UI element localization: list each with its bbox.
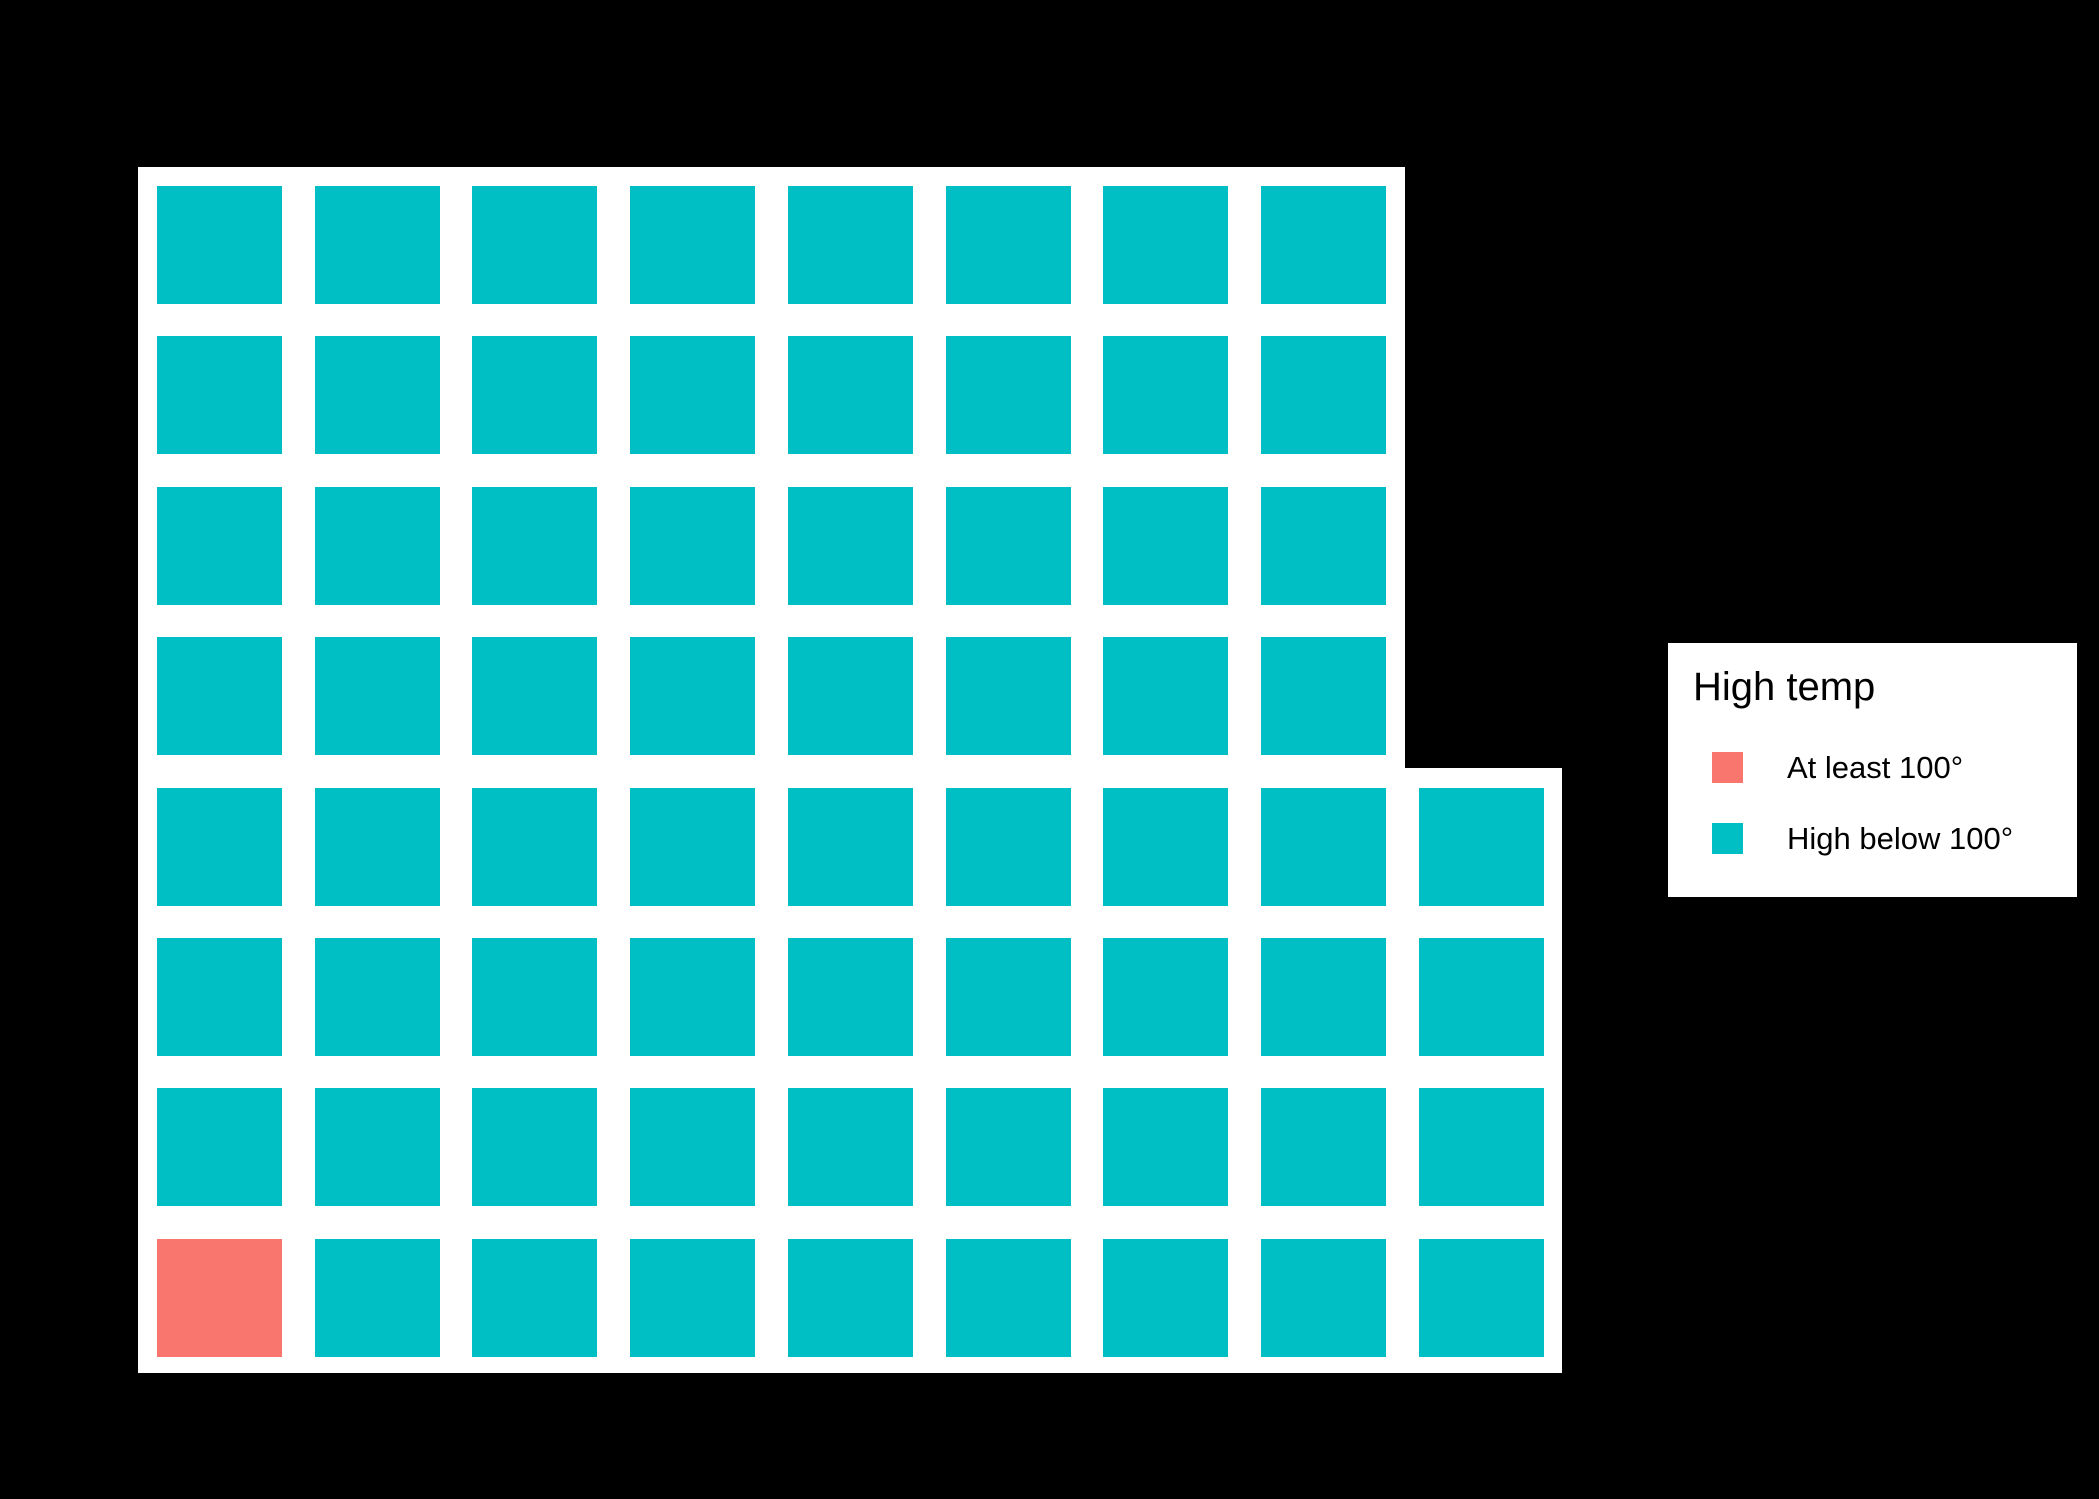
waffle-cell-r7c3 [472,1088,597,1206]
waffle-cell-r8c5 [788,1239,913,1357]
waffle-cell-r4c2 [315,637,440,755]
waffle-cell-r7c8 [1261,1088,1386,1206]
waffle-cell-r8c9 [1419,1239,1544,1357]
waffle-cell-r2c2 [315,336,440,454]
waffle-cell-r4c3 [472,637,597,755]
waffle-cell-r5c7 [1103,788,1228,906]
waffle-cell-r7c7 [1103,1088,1228,1206]
waffle-cell-r2c3 [472,336,597,454]
waffle-cell-r1c5 [788,186,913,304]
waffle-cell-r3c1 [157,487,282,605]
waffle-cell-r8c1 [157,1239,282,1357]
waffle-cell-r5c4 [630,788,755,906]
waffle-cell-r3c4 [630,487,755,605]
waffle-cell-r5c6 [946,788,1071,906]
waffle-cell-r1c8 [1261,186,1386,304]
waffle-cell-r4c7 [1103,637,1228,755]
waffle-cell-r5c3 [472,788,597,906]
waffle-cell-r5c2 [315,788,440,906]
waffle-cell-r5c8 [1261,788,1386,906]
waffle-cell-r6c4 [630,938,755,1056]
waffle-cell-r1c7 [1103,186,1228,304]
waffle-cell-r7c5 [788,1088,913,1206]
waffle-cell-r8c4 [630,1239,755,1357]
waffle-cell-r8c3 [472,1239,597,1357]
waffle-cell-r1c3 [472,186,597,304]
waffle-cell-r1c2 [315,186,440,304]
waffle-cell-r1c1 [157,186,282,304]
waffle-cell-r4c4 [630,637,755,755]
waffle-cell-r3c7 [1103,487,1228,605]
waffle-cell-r7c2 [315,1088,440,1206]
legend-key-swatch-at-least-100 [1712,752,1743,783]
legend: High temp At least 100° High below 100° [1668,643,2077,897]
waffle-cell-r3c3 [472,487,597,605]
waffle-cell-r7c6 [946,1088,1071,1206]
waffle-cell-r8c7 [1103,1239,1228,1357]
waffle-cell-r5c1 [157,788,282,906]
waffle-cell-r1c6 [946,186,1071,304]
legend-label-high-below-100: High below 100° [1787,821,2013,857]
waffle-cell-r6c1 [157,938,282,1056]
waffle-cell-r5c9 [1419,788,1544,906]
waffle-cell-r6c9 [1419,938,1544,1056]
legend-key-swatch-high-below-100 [1712,823,1743,854]
waffle-cell-r4c8 [1261,637,1386,755]
waffle-cell-r5c5 [788,788,913,906]
waffle-cell-r3c5 [788,487,913,605]
waffle-cell-r2c5 [788,336,913,454]
waffle-cell-r3c6 [946,487,1071,605]
waffle-cell-r2c7 [1103,336,1228,454]
waffle-cell-r4c6 [946,637,1071,755]
waffle-cell-r7c4 [630,1088,755,1206]
waffle-cell-r2c4 [630,336,755,454]
waffle-cell-r6c8 [1261,938,1386,1056]
waffle-cell-r6c5 [788,938,913,1056]
waffle-cell-r2c8 [1261,336,1386,454]
legend-label-at-least-100: At least 100° [1787,750,1963,786]
waffle-cell-r6c3 [472,938,597,1056]
waffle-cell-r6c7 [1103,938,1228,1056]
waffle-cell-r8c6 [946,1239,1071,1357]
waffle-cell-r3c2 [315,487,440,605]
waffle-cell-r4c1 [157,637,282,755]
waffle-cell-r8c2 [315,1239,440,1357]
waffle-cell-r7c1 [157,1088,282,1206]
waffle-cell-r1c4 [630,186,755,304]
waffle-cell-r2c1 [157,336,282,454]
legend-entry-at-least-100: At least 100° [1712,752,1963,783]
waffle-cell-r4c5 [788,637,913,755]
waffle-cell-r6c6 [946,938,1071,1056]
legend-entry-high-below-100: High below 100° [1712,823,2013,854]
waffle-cell-r7c9 [1419,1088,1544,1206]
waffle-cell-r3c8 [1261,487,1386,605]
waffle-cell-r2c6 [946,336,1071,454]
waffle-cell-r8c8 [1261,1239,1386,1357]
legend-title: High temp [1693,663,1875,711]
waffle-cell-r6c2 [315,938,440,1056]
